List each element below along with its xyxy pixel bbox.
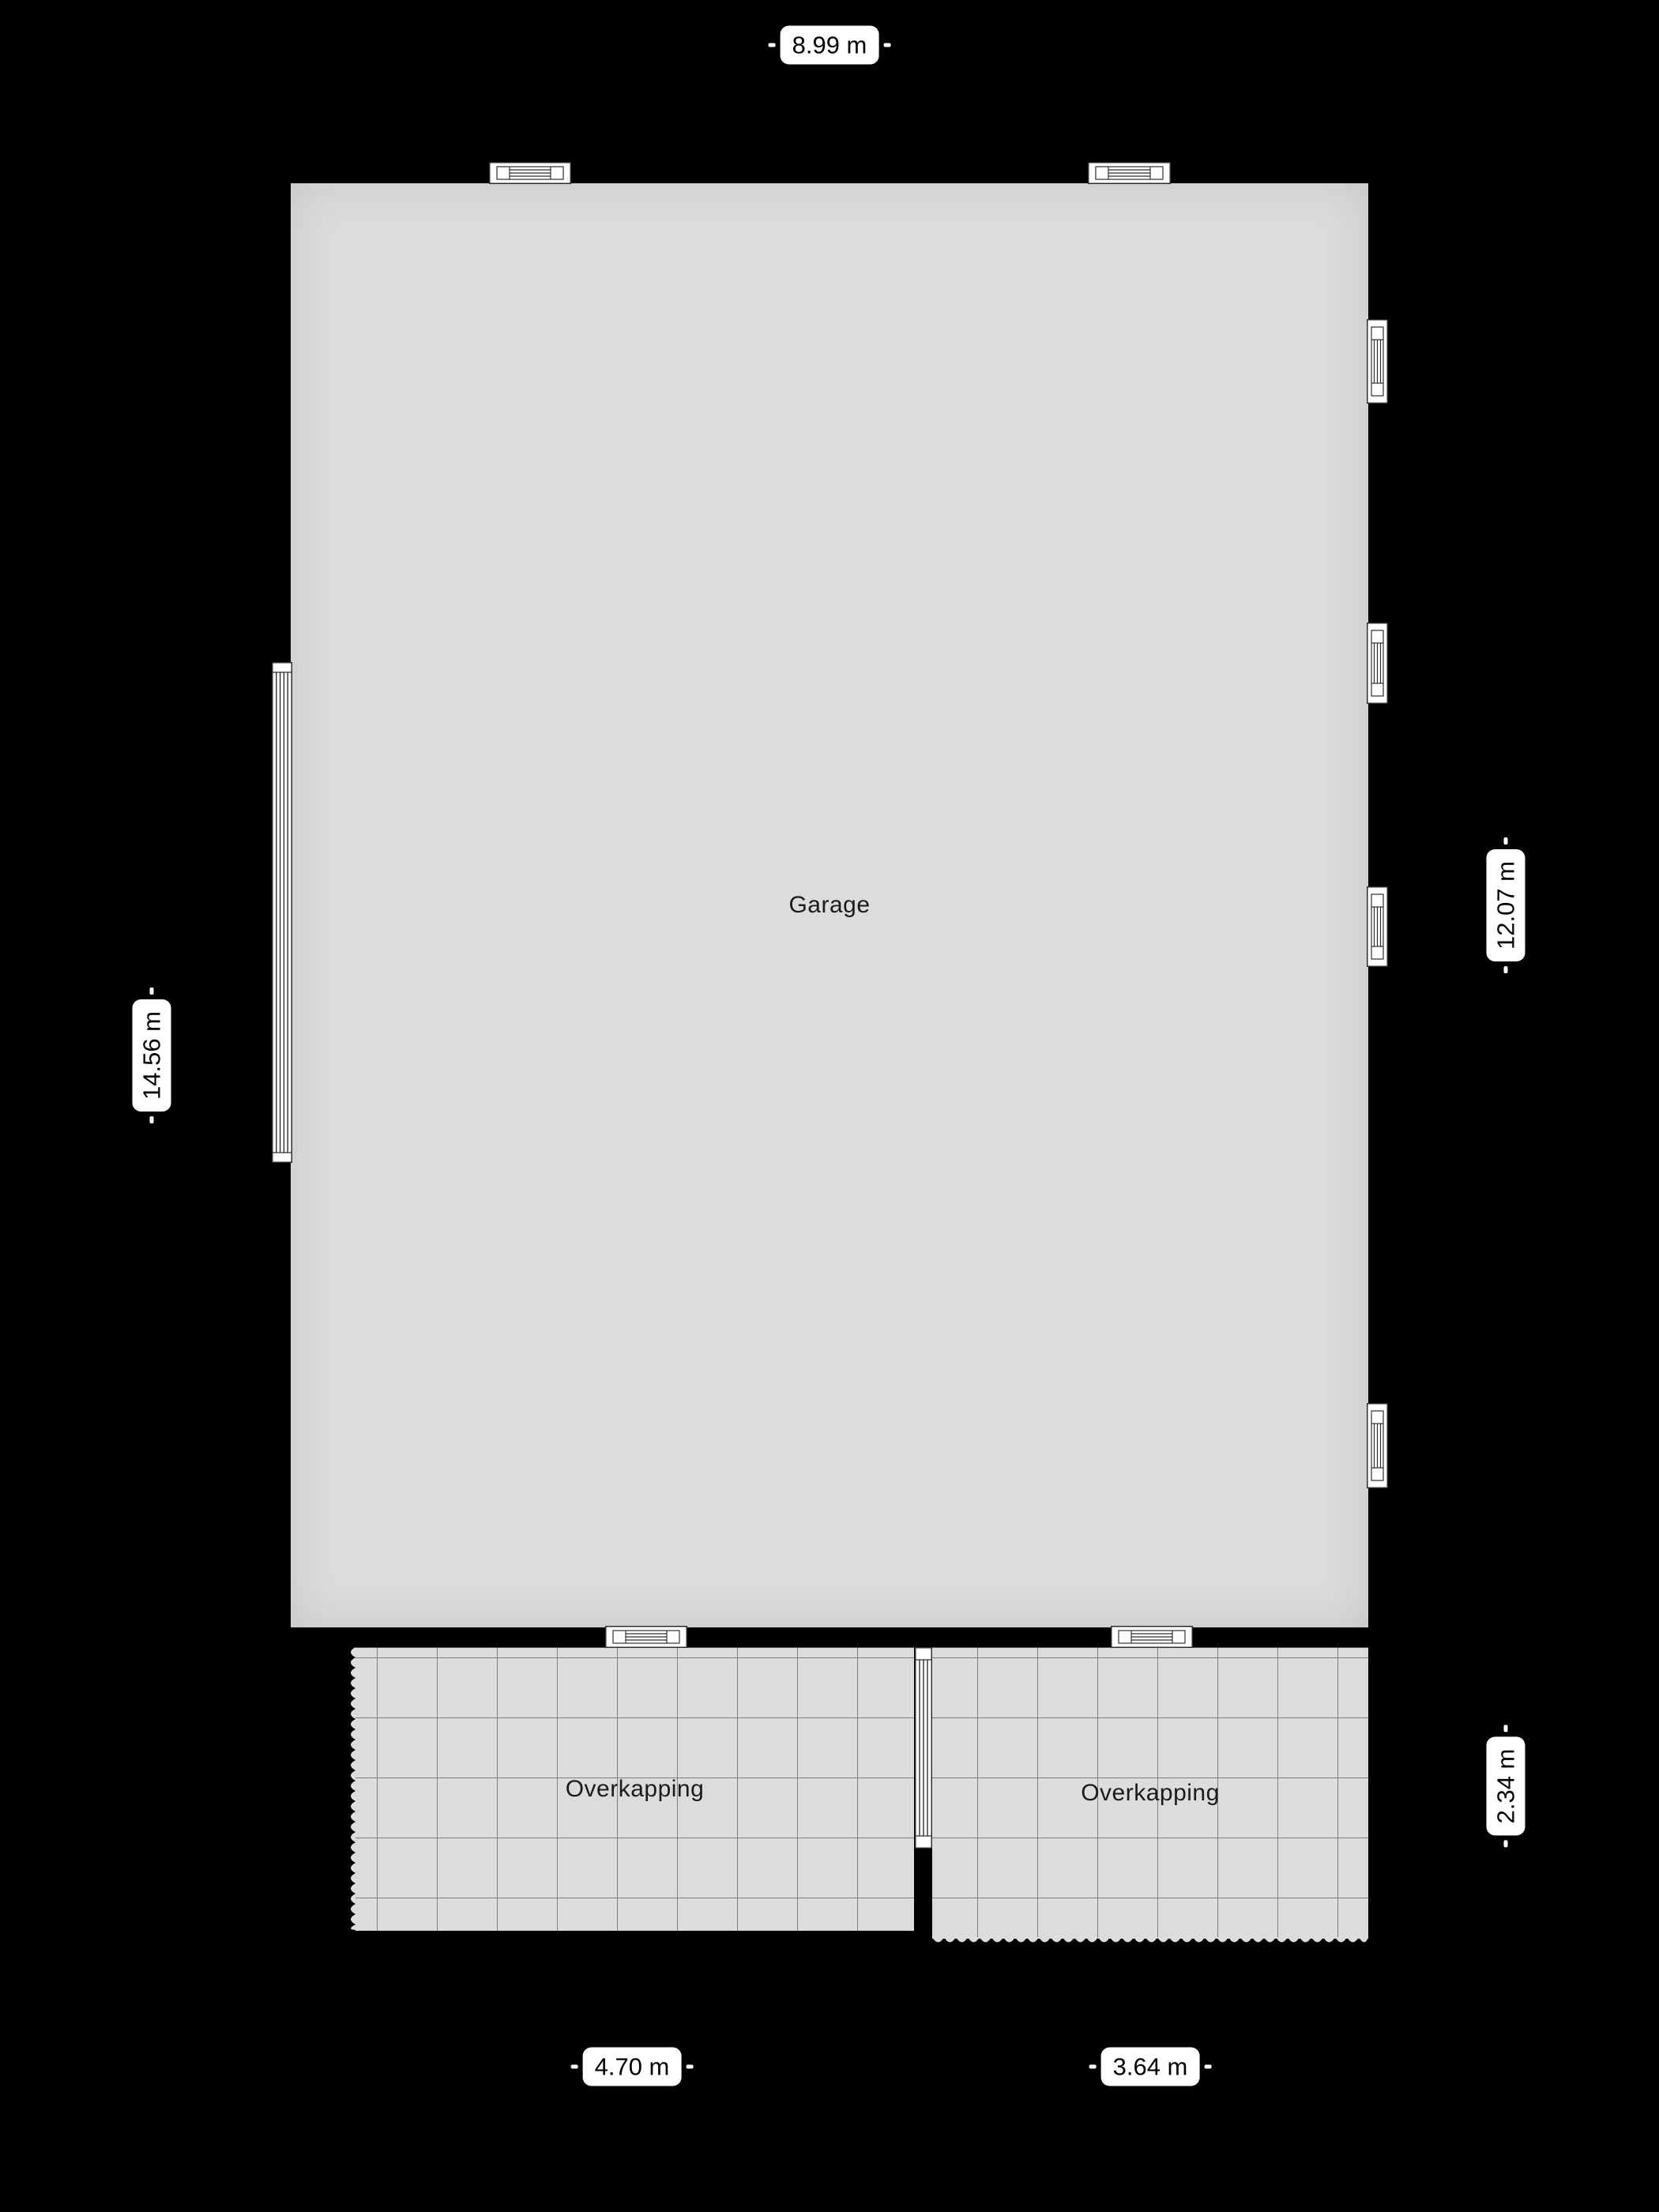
overkapping-divider-window-icon (915, 1647, 932, 1849)
garage-bottom-window-right-icon (1111, 1626, 1193, 1648)
dimension-bottom-right: 3.64 m (1089, 2048, 1212, 2086)
dimension-tick (686, 2065, 693, 2069)
room-overkapping-left: Overkapping (355, 1647, 914, 1931)
dimension-left: 14.56 m (133, 987, 171, 1123)
dimension-tick (883, 43, 890, 47)
floor-plan-canvas: Garage Overkapping Overkapping 8.99 m 14… (0, 0, 1659, 2212)
dimension-tick (1504, 966, 1508, 973)
dimension-tick (150, 1116, 154, 1123)
dimension-tick (150, 987, 154, 995)
dimension-value: 2.34 m (1487, 1737, 1525, 1836)
room-overkapping-right: Overkapping (932, 1647, 1368, 1939)
garage-right-window-2-icon (1367, 623, 1388, 704)
dimension-right-lower: 2.34 m (1487, 1725, 1525, 1848)
room-label-overkapping-left: Overkapping (566, 1776, 705, 1803)
dimension-value: 14.56 m (133, 999, 171, 1112)
garage-left-window-icon (272, 662, 292, 1163)
garage-top-window-left-icon (489, 162, 571, 184)
room-label-garage: Garage (788, 892, 870, 919)
dimension-tick (1089, 2065, 1097, 2069)
dimension-value: 12.07 m (1487, 849, 1525, 961)
garage-bottom-wall (291, 1627, 1368, 1647)
dimension-tick (1504, 1840, 1508, 1847)
dimension-tick (1504, 1725, 1508, 1732)
garage-right-window-4-icon (1367, 1403, 1388, 1488)
dimension-value: 8.99 m (781, 26, 879, 65)
overkapping-left-open-edge (346, 1647, 355, 1930)
room-garage: Garage (291, 183, 1368, 1627)
dimension-value: 4.70 m (583, 2048, 682, 2086)
dimension-tick (769, 43, 776, 47)
dimension-value: 3.64 m (1101, 2048, 1200, 2086)
overkapping-right-open-edge (932, 1937, 1368, 1947)
dimension-tick (571, 2065, 578, 2069)
garage-bottom-window-left-icon (605, 1626, 687, 1648)
dimension-tick (1204, 2065, 1211, 2069)
dimension-tick (1504, 837, 1508, 845)
garage-top-window-right-icon (1088, 162, 1171, 184)
dimension-top: 8.99 m (769, 26, 891, 65)
garage-right-window-1-icon (1367, 319, 1388, 404)
room-label-overkapping-right: Overkapping (1081, 1780, 1220, 1807)
garage-right-window-3-icon (1367, 886, 1388, 967)
dimension-bottom-left: 4.70 m (571, 2048, 694, 2086)
dimension-right-upper: 12.07 m (1487, 837, 1525, 973)
